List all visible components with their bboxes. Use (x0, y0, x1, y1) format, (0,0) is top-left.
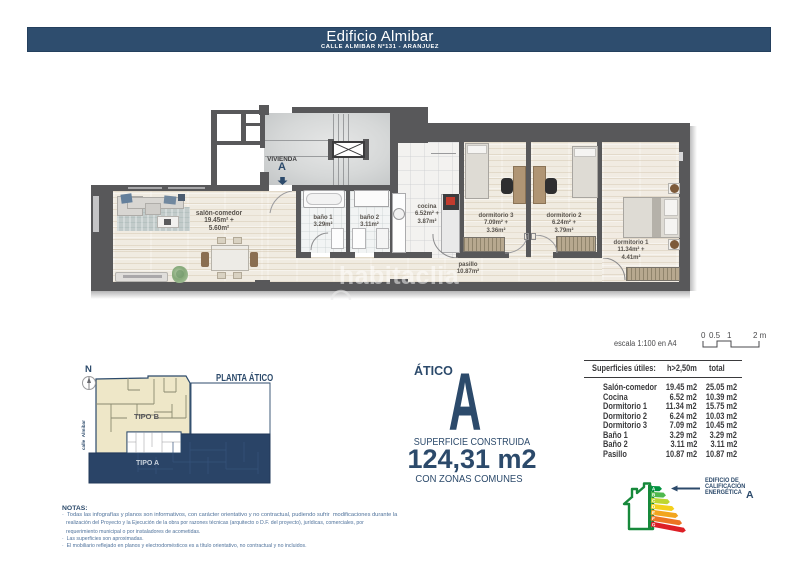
svg-text:0.5: 0.5 (709, 331, 721, 340)
svg-text:0: 0 (701, 331, 706, 340)
svg-text:TIPO B: TIPO B (134, 412, 160, 421)
svg-text:2 m: 2 m (753, 331, 767, 340)
svg-text:TIPO A: TIPO A (136, 460, 159, 467)
svg-text:1: 1 (727, 331, 732, 340)
